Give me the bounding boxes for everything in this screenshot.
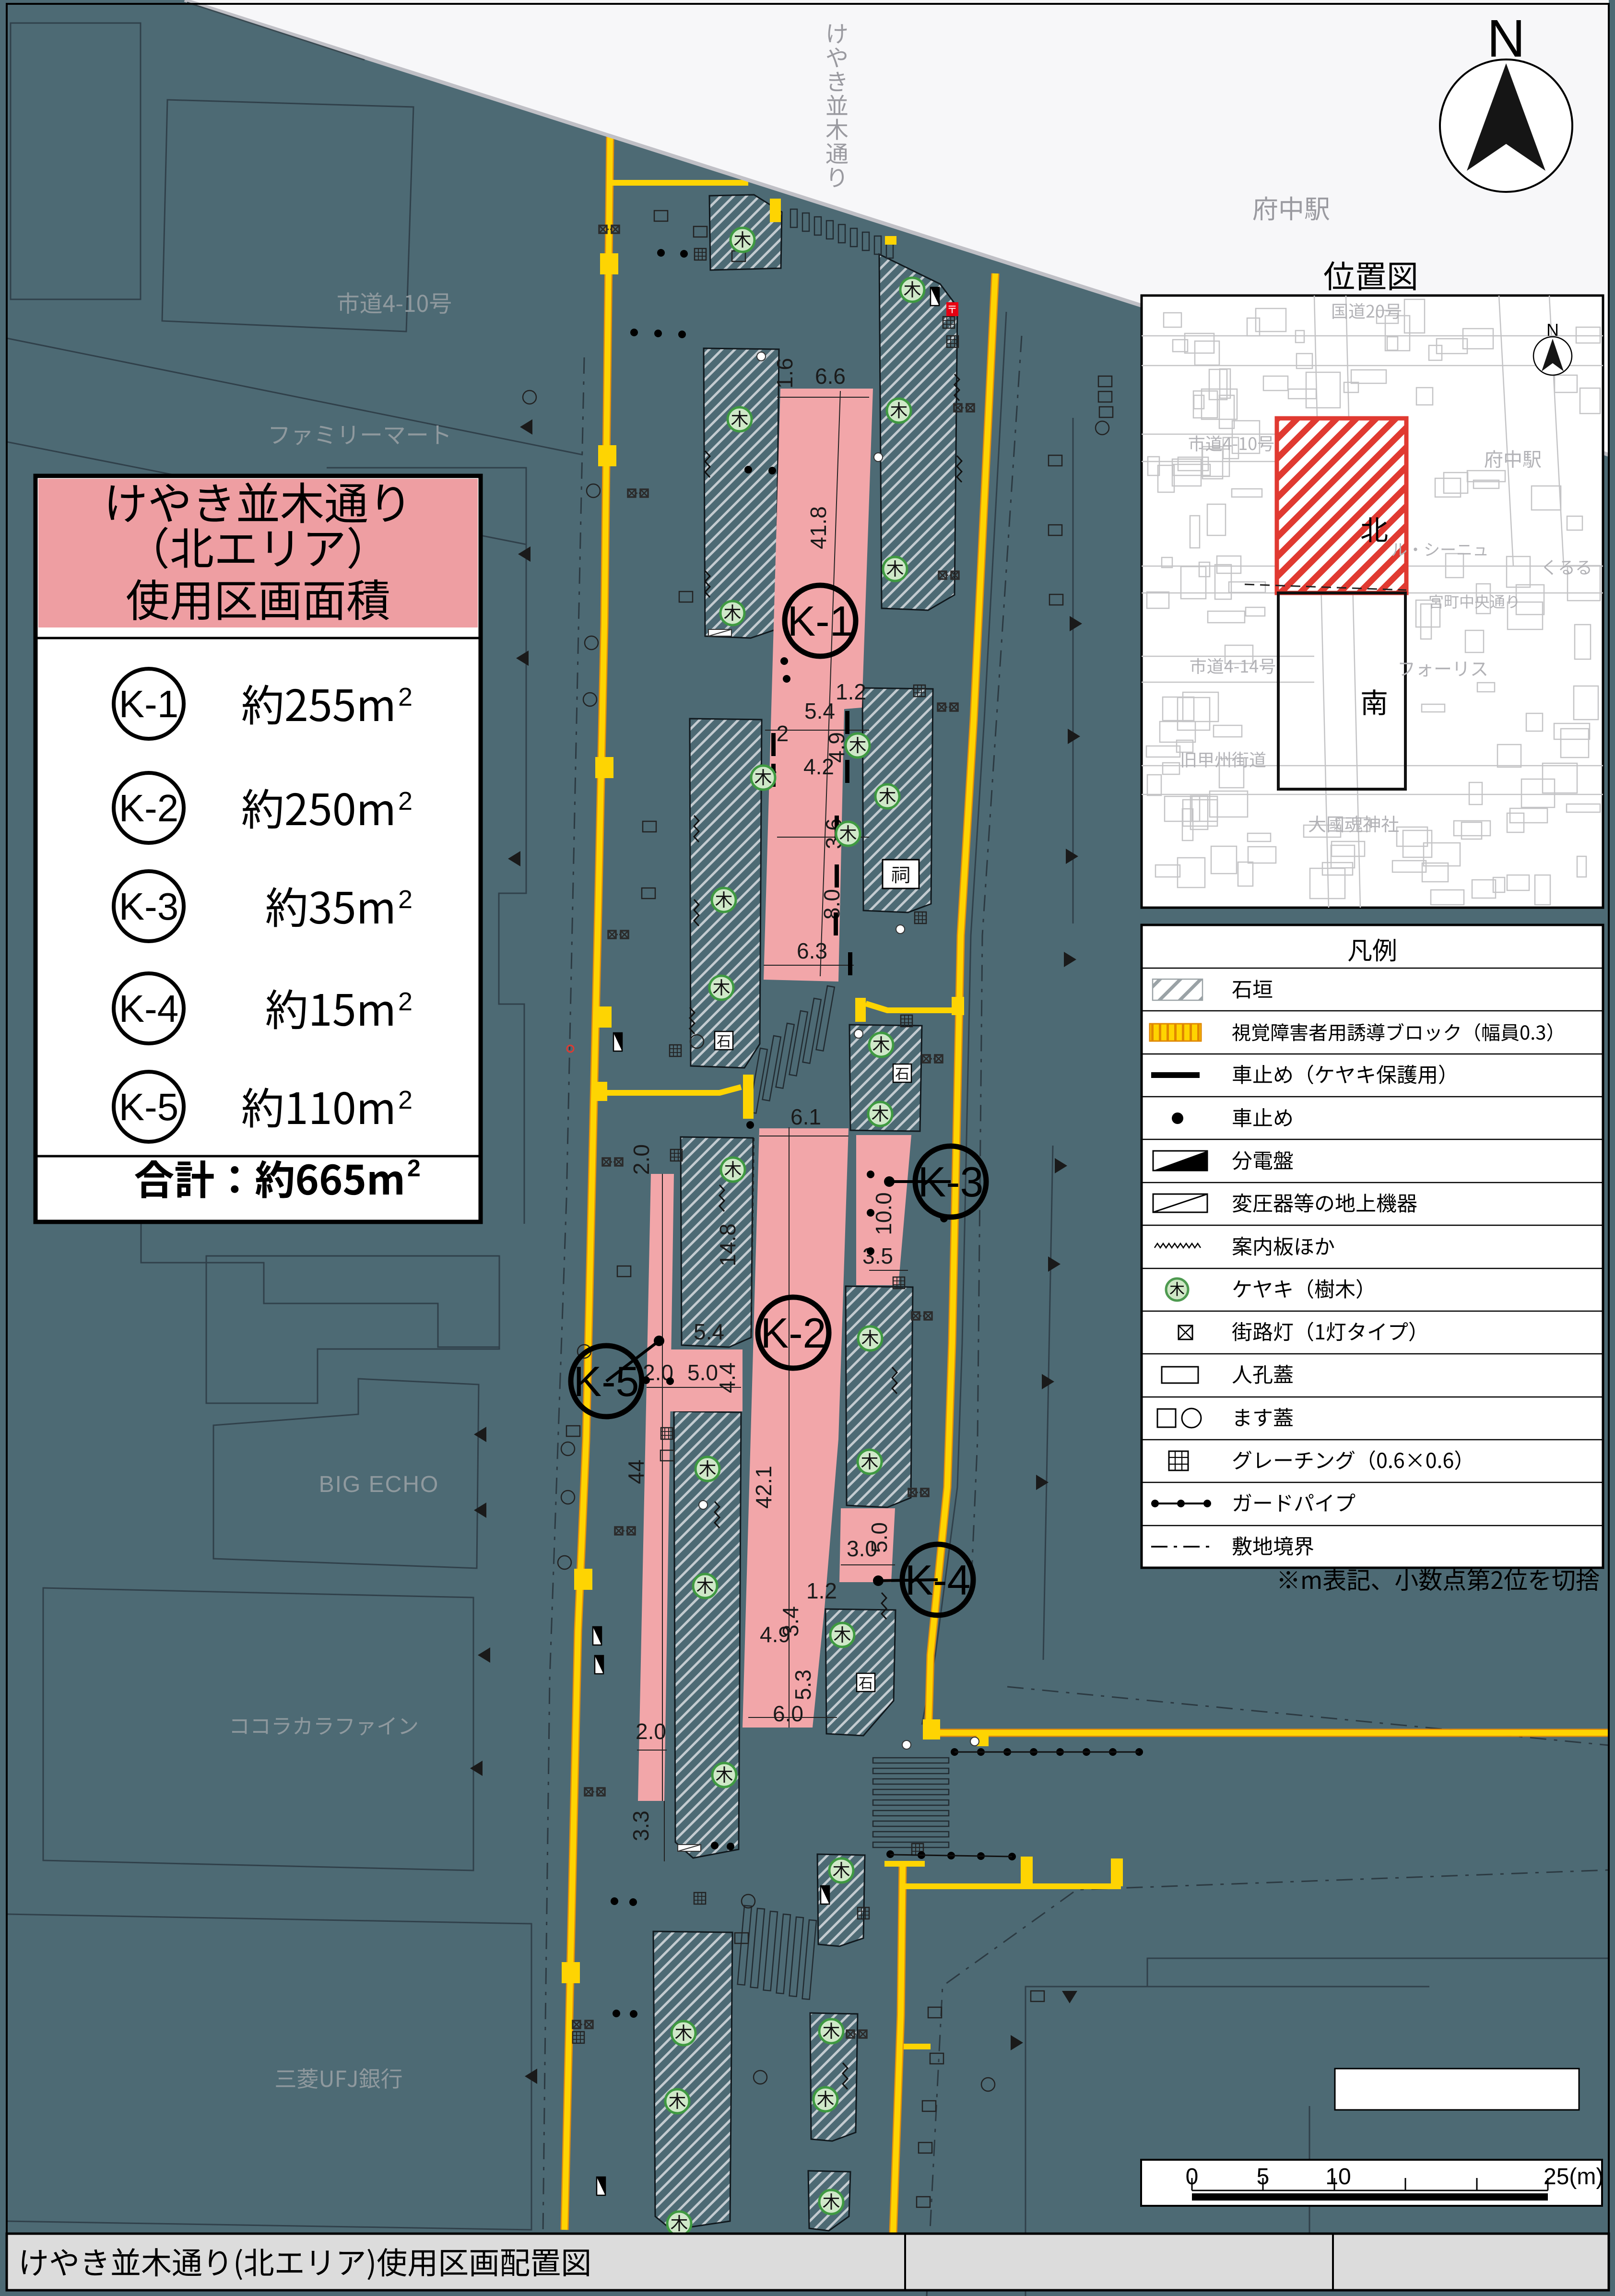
svg-text:K-4: K-4	[905, 1556, 971, 1604]
svg-text:1.6: 1.6	[772, 358, 797, 389]
svg-text:25(m): 25(m)	[1544, 2164, 1603, 2189]
svg-text:2.0: 2.0	[636, 1719, 666, 1744]
svg-text:6.1: 6.1	[790, 1104, 821, 1129]
svg-text:6.6: 6.6	[815, 364, 846, 389]
svg-text:10.0: 10.0	[871, 1192, 896, 1235]
svg-text:K-4: K-4	[119, 987, 179, 1030]
svg-text:2: 2	[398, 683, 413, 711]
svg-text:K-3: K-3	[918, 1158, 984, 1206]
svg-text:8.0: 8.0	[819, 889, 844, 920]
svg-text:1.2: 1.2	[836, 679, 866, 704]
svg-text:6.0: 6.0	[773, 1701, 803, 1726]
svg-text:5.0: 5.0	[867, 1522, 892, 1553]
svg-text:10: 10	[1325, 2164, 1351, 2189]
svg-text:2: 2	[398, 885, 413, 914]
svg-text:42.1: 42.1	[751, 1466, 776, 1509]
svg-text:K-1: K-1	[788, 597, 853, 645]
svg-text:4.4: 4.4	[715, 1362, 740, 1393]
svg-text:K-5: K-5	[119, 1086, 179, 1128]
svg-text:14.8: 14.8	[715, 1223, 740, 1266]
svg-text:BIG ECHO: BIG ECHO	[319, 1472, 439, 1497]
svg-text:3.3: 3.3	[628, 1811, 653, 1841]
svg-text:41.8: 41.8	[806, 506, 831, 549]
svg-text:5.4: 5.4	[804, 698, 835, 723]
svg-text:N: N	[1487, 9, 1525, 68]
svg-text:3.5: 3.5	[862, 1243, 893, 1268]
svg-text:5.0: 5.0	[687, 1360, 718, 1385]
svg-text:2.0: 2.0	[629, 1144, 654, 1175]
svg-text:2: 2	[398, 1086, 413, 1114]
svg-text:3.4: 3.4	[778, 1606, 803, 1637]
svg-text:6.3: 6.3	[797, 938, 827, 963]
svg-text:4.2: 4.2	[803, 754, 834, 779]
svg-text:K-1: K-1	[119, 683, 179, 725]
svg-text:2: 2	[398, 787, 413, 816]
svg-text:K-2: K-2	[119, 787, 179, 829]
svg-text:5.4: 5.4	[694, 1319, 724, 1344]
svg-text:K-5: K-5	[574, 1358, 639, 1405]
svg-text:2: 2	[398, 987, 413, 1016]
svg-text:K-2: K-2	[761, 1309, 826, 1357]
svg-text:44: 44	[624, 1459, 648, 1484]
svg-text:1.2: 1.2	[806, 1578, 837, 1603]
svg-text:N: N	[1546, 320, 1559, 340]
svg-text:2: 2	[407, 1155, 421, 1182]
svg-text:K-3: K-3	[119, 885, 179, 928]
svg-text:5.3: 5.3	[790, 1669, 815, 1700]
